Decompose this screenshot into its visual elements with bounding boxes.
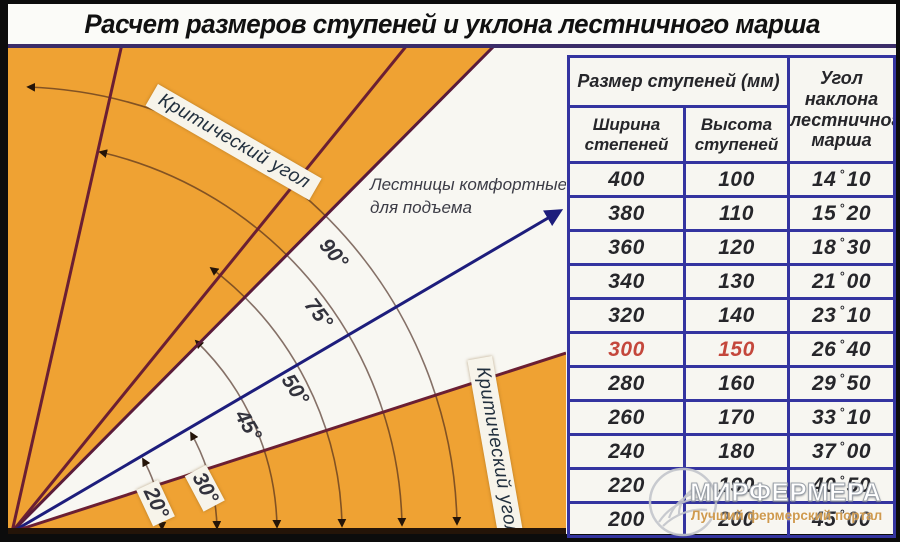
cell-width: 280	[569, 367, 685, 401]
table-row: 200 200 45°00	[569, 503, 895, 537]
cell-angle: 14°10	[789, 163, 895, 197]
degree-symbol: °	[839, 337, 844, 351]
table-row-highlighted: 300 150 26°40	[569, 333, 895, 367]
table-row: 360 120 18°30	[569, 231, 895, 265]
cell-height: 150	[685, 333, 789, 367]
cell-angle: 23°10	[789, 299, 895, 333]
table-row: 320 140 23°10	[569, 299, 895, 333]
cell-angle: 37°00	[789, 435, 895, 469]
title-bar: Расчет размеров ступеней и уклона лестни…	[8, 4, 896, 44]
degree-symbol: °	[839, 303, 844, 317]
cell-angle: 18°30	[789, 231, 895, 265]
cell-width: 360	[569, 231, 685, 265]
infographic: Расчет размеров ступеней и уклона лестни…	[0, 0, 900, 542]
degree-symbol: °	[839, 201, 844, 215]
cell-width: 220	[569, 469, 685, 503]
cell-angle: 45°00	[789, 503, 895, 537]
cell-height: 130	[685, 265, 789, 299]
table-row: 220 190 40°50	[569, 469, 895, 503]
cell-width: 260	[569, 401, 685, 435]
degree-symbol: °	[839, 371, 844, 385]
cell-height: 110	[685, 197, 789, 231]
header-height: Высота ступеней	[685, 107, 789, 163]
comfort-zone-note: Лестницы комфортные для подъема	[370, 174, 566, 220]
cell-height: 190	[685, 469, 789, 503]
fan-rays-and-arcs	[8, 48, 566, 534]
cell-height: 120	[685, 231, 789, 265]
step-size-table-panel: Размер ступеней (мм) Угол наклона лестни…	[566, 48, 896, 534]
header-angle: Угол наклона лестничного марша	[789, 57, 895, 163]
cell-height: 180	[685, 435, 789, 469]
cell-width: 340	[569, 265, 685, 299]
degree-symbol: °	[839, 235, 844, 249]
cell-angle: 33°10	[789, 401, 895, 435]
degree-symbol: °	[839, 405, 844, 419]
cell-angle: 15°20	[789, 197, 895, 231]
header-width: Ширина степеней	[569, 107, 685, 163]
cell-width: 320	[569, 299, 685, 333]
table-row: 400 100 14°10	[569, 163, 895, 197]
cell-height: 170	[685, 401, 789, 435]
step-size-table: Размер ступеней (мм) Угол наклона лестни…	[567, 55, 896, 538]
degree-symbol: °	[839, 167, 844, 181]
cell-width: 400	[569, 163, 685, 197]
table-row: 280 160 29°50	[569, 367, 895, 401]
cell-height: 140	[685, 299, 789, 333]
degree-symbol: °	[839, 507, 844, 521]
cell-angle: 40°50	[789, 469, 895, 503]
table-row: 380 110 15°20	[569, 197, 895, 231]
cell-width: 240	[569, 435, 685, 469]
table-header-row: Размер ступеней (мм) Угол наклона лестни…	[569, 57, 895, 107]
slope-fan-diagram: Критический угол Критический угол Лестни…	[8, 48, 566, 534]
table-row: 260 170 33°10	[569, 401, 895, 435]
degree-symbol: °	[839, 473, 844, 487]
table-row: 240 180 37°00	[569, 435, 895, 469]
header-step-size: Размер ступеней (мм)	[569, 57, 789, 107]
degree-symbol: °	[839, 269, 844, 283]
cell-width: 380	[569, 197, 685, 231]
page-title: Расчет размеров ступеней и уклона лестни…	[84, 9, 820, 40]
table-row: 340 130 21°00	[569, 265, 895, 299]
cell-height: 200	[685, 503, 789, 537]
cell-width: 300	[569, 333, 685, 367]
degree-symbol: °	[839, 439, 844, 453]
cell-angle: 29°50	[789, 367, 895, 401]
cell-angle: 26°40	[789, 333, 895, 367]
cell-height: 100	[685, 163, 789, 197]
diagram-baseline	[8, 528, 566, 534]
cell-height: 160	[685, 367, 789, 401]
comfort-zone-wedge	[12, 48, 566, 532]
cell-width: 200	[569, 503, 685, 537]
cell-angle: 21°00	[789, 265, 895, 299]
